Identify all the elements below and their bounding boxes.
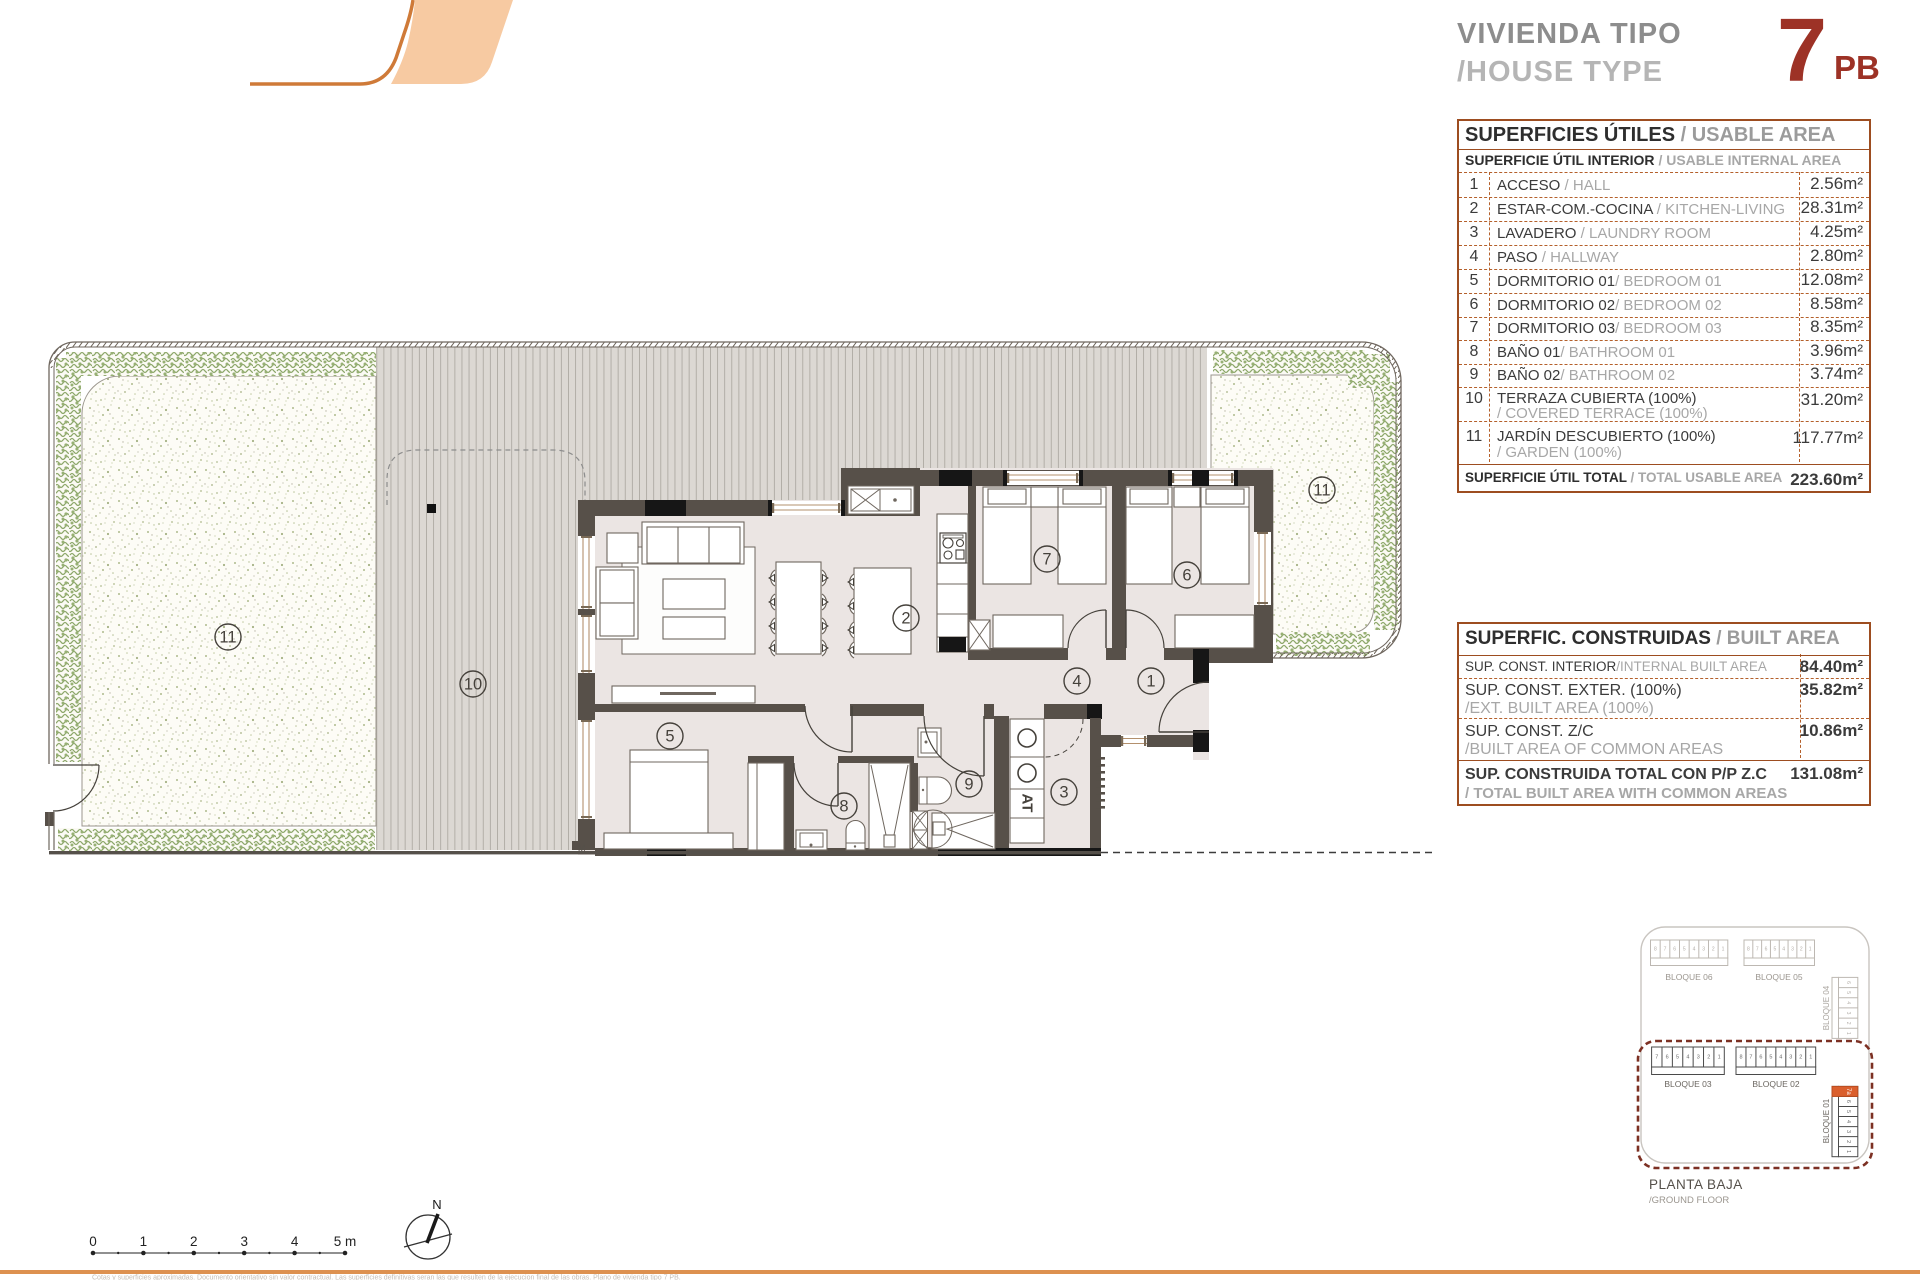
svg-text:5: 5 xyxy=(1676,1055,1679,1061)
svg-text:3: 3 xyxy=(240,1234,248,1249)
svg-text:1: 1 xyxy=(1845,1032,1851,1035)
svg-text:BLOQUE 06: BLOQUE 06 xyxy=(1665,972,1713,982)
svg-text:7: 7 xyxy=(1749,1055,1752,1061)
svg-text:2: 2 xyxy=(1800,947,1803,953)
svg-text:5: 5 xyxy=(665,728,674,746)
svg-text:3: 3 xyxy=(1702,947,1705,953)
svg-text:2: 2 xyxy=(190,1234,198,1249)
svg-text:10: 10 xyxy=(464,676,482,694)
svg-text:2: 2 xyxy=(1712,947,1715,953)
svg-text:4: 4 xyxy=(1845,1001,1851,1004)
svg-text:6: 6 xyxy=(1845,1100,1851,1103)
svg-text:2: 2 xyxy=(1845,1140,1851,1143)
svg-text:1: 1 xyxy=(1146,673,1155,691)
svg-text:1: 1 xyxy=(1722,947,1725,953)
svg-text:BLOQUE 05: BLOQUE 05 xyxy=(1755,972,1803,982)
svg-text:7: 7 xyxy=(1655,1055,1658,1061)
svg-text:4: 4 xyxy=(1686,1055,1689,1061)
svg-text:1: 1 xyxy=(1809,1055,1812,1061)
svg-text:11: 11 xyxy=(219,629,236,647)
svg-text:5: 5 xyxy=(1845,1110,1851,1113)
svg-text:4: 4 xyxy=(1779,1055,1782,1061)
svg-text:9: 9 xyxy=(964,776,973,794)
svg-text:/GROUND FLOOR: /GROUND FLOOR xyxy=(1649,1195,1729,1206)
svg-text:3: 3 xyxy=(1059,784,1068,802)
svg-text:6: 6 xyxy=(1182,567,1191,585)
svg-text:5: 5 xyxy=(1683,947,1686,953)
svg-text:8: 8 xyxy=(1739,1055,1742,1061)
svg-text:6: 6 xyxy=(1666,1055,1669,1061)
svg-text:3: 3 xyxy=(1845,1130,1851,1133)
svg-text:3: 3 xyxy=(1697,1055,1700,1061)
svg-text:BLOQUE 03: BLOQUE 03 xyxy=(1664,1079,1712,1089)
svg-text:Cotas y superficies aproximada: Cotas y superficies aproximadas. Documen… xyxy=(92,1275,681,1280)
svg-text:1: 1 xyxy=(1845,1150,1851,1153)
svg-text:7: 7 xyxy=(1042,551,1051,569)
svg-text:5: 5 xyxy=(1769,1055,1772,1061)
svg-text:2: 2 xyxy=(901,610,910,628)
svg-text:N: N xyxy=(432,1197,441,1212)
svg-text:4: 4 xyxy=(1693,947,1696,953)
svg-text:6: 6 xyxy=(1845,981,1851,984)
svg-text:5: 5 xyxy=(1845,991,1851,994)
svg-text:2: 2 xyxy=(1799,1055,1802,1061)
svg-text:1: 1 xyxy=(140,1234,148,1249)
svg-text:7: 7 xyxy=(1664,947,1667,953)
svg-text:0: 0 xyxy=(89,1234,97,1249)
svg-text:5 m: 5 m xyxy=(334,1234,357,1249)
svg-text:7: 7 xyxy=(1756,947,1759,953)
svg-text:8: 8 xyxy=(1747,947,1750,953)
svg-text:4: 4 xyxy=(291,1234,299,1249)
svg-text:4: 4 xyxy=(1845,1120,1851,1123)
svg-text:8: 8 xyxy=(1654,947,1657,953)
svg-text:1: 1 xyxy=(1809,947,1812,953)
svg-text:3: 3 xyxy=(1845,1012,1851,1015)
svg-text:11: 11 xyxy=(1313,482,1330,500)
svg-text:8: 8 xyxy=(839,798,848,816)
svg-text:6: 6 xyxy=(1765,947,1768,953)
svg-text:7a: 7a xyxy=(1845,1088,1851,1095)
svg-text:5: 5 xyxy=(1773,947,1776,953)
svg-text:6: 6 xyxy=(1759,1055,1762,1061)
svg-text:BLOQUE 04: BLOQUE 04 xyxy=(1822,985,1831,1030)
svg-text:6: 6 xyxy=(1673,947,1676,953)
svg-text:BLOQUE 02: BLOQUE 02 xyxy=(1752,1079,1800,1089)
svg-text:BLOQUE 01: BLOQUE 01 xyxy=(1822,1098,1831,1143)
svg-text:AT: AT xyxy=(1019,794,1036,813)
svg-text:1: 1 xyxy=(1718,1055,1721,1061)
svg-text:M: M xyxy=(578,843,586,853)
svg-text:4: 4 xyxy=(1782,947,1785,953)
svg-text:PLANTA BAJA: PLANTA BAJA xyxy=(1649,1177,1743,1192)
svg-text:2: 2 xyxy=(1707,1055,1710,1061)
svg-text:3: 3 xyxy=(1791,947,1794,953)
svg-text:2: 2 xyxy=(1845,1022,1851,1025)
svg-text:3: 3 xyxy=(1789,1055,1792,1061)
svg-text:4: 4 xyxy=(1072,673,1081,691)
